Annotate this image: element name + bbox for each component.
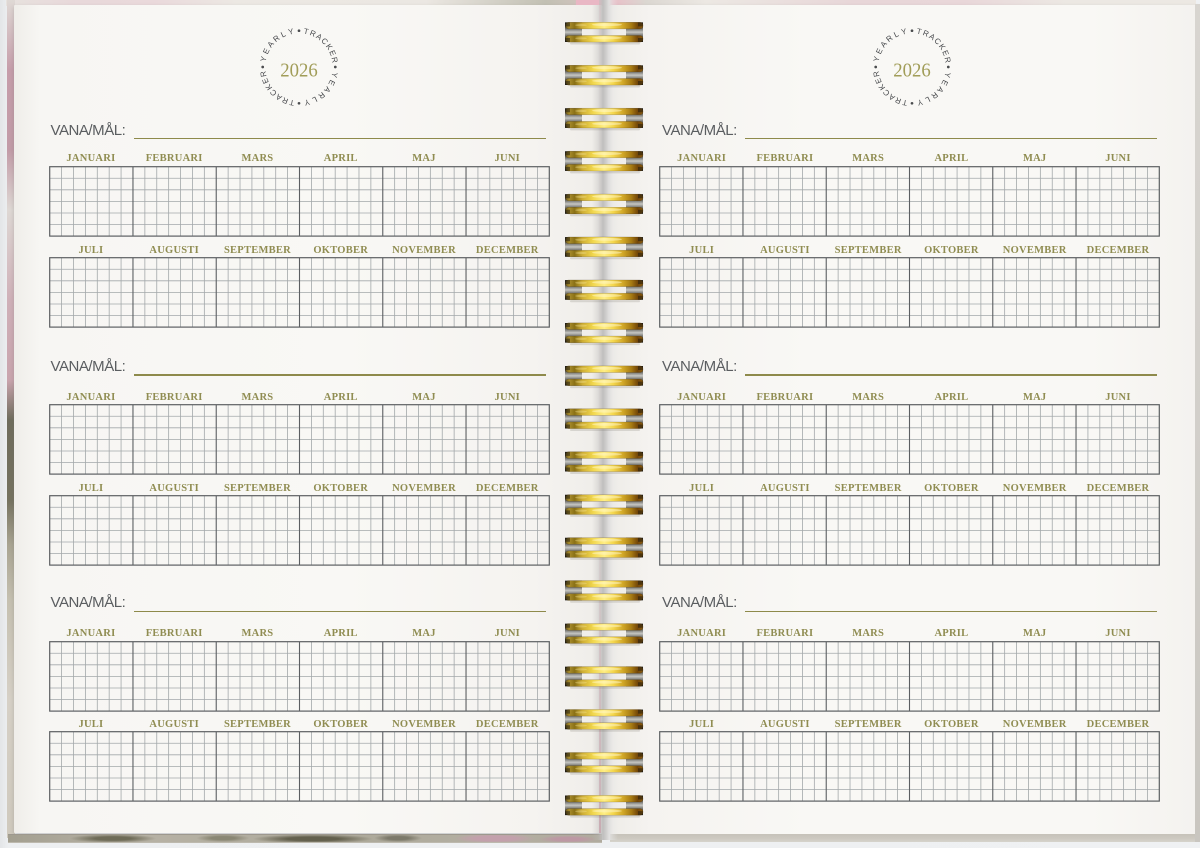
svg-text:L: L [892, 29, 900, 39]
svg-text:2026: 2026 [280, 59, 318, 81]
svg-text:R: R [330, 56, 340, 64]
svg-text:L: L [923, 94, 931, 104]
svg-text:L: L [279, 29, 287, 39]
svg-text:Y: Y [287, 26, 295, 36]
svg-text:Y: Y [303, 97, 311, 107]
svg-text:R: R [942, 56, 952, 64]
svg-text:Y: Y [915, 97, 923, 107]
svg-text:Y: Y [329, 71, 339, 79]
svg-text:Y: Y [900, 26, 908, 36]
svg-text:2026: 2026 [893, 59, 931, 81]
svg-text:R: R [258, 70, 268, 78]
svg-text:R: R [871, 70, 881, 78]
svg-text:Y: Y [942, 71, 952, 79]
svg-text:Y: Y [871, 54, 881, 62]
svg-text:L: L [310, 94, 318, 104]
svg-text:Y: Y [259, 54, 269, 62]
